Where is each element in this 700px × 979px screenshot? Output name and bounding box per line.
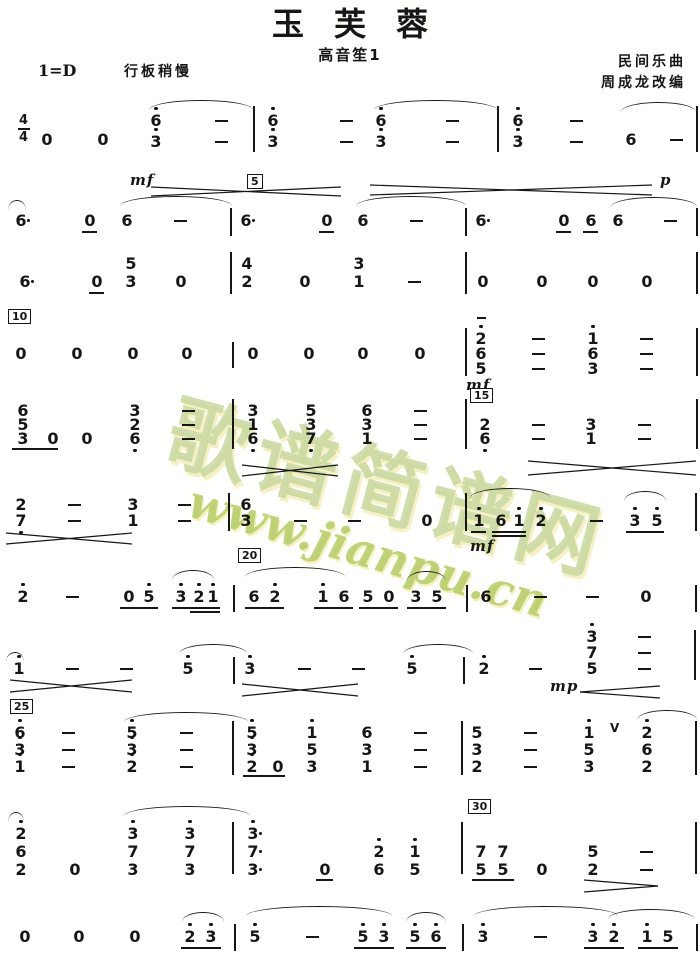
slur-arc — [182, 912, 224, 922]
breath-mark: V — [610, 722, 619, 734]
duration-dash — [524, 766, 537, 768]
note-digit: 2 — [372, 843, 386, 860]
octave-dot — [251, 820, 254, 823]
octave-dot — [539, 507, 542, 510]
beam-underline — [472, 879, 514, 881]
beam-underline — [120, 607, 158, 609]
octave-dot — [154, 128, 157, 131]
duration-dash — [640, 368, 653, 370]
duration-dash — [414, 732, 427, 734]
duration-dash — [340, 141, 353, 143]
octave-dot — [197, 583, 200, 586]
duration-dash — [174, 220, 187, 222]
note-digit: 3 — [266, 133, 280, 150]
slur-arc — [624, 491, 666, 501]
note-digit: 2 — [16, 588, 30, 605]
octave-dot — [250, 719, 253, 722]
hairpin-cross — [528, 460, 696, 480]
rest-digit: 0 — [68, 861, 82, 878]
score: 4400636363636mfp606560660666053042031000… — [0, 0, 700, 979]
note-digit: 5 — [408, 861, 422, 878]
note-digit: 5 — [408, 928, 422, 945]
note-digit: 1 — [640, 928, 654, 945]
note-digit: 5 — [356, 928, 370, 945]
octave-dot — [382, 923, 385, 926]
augmentation-dot — [252, 219, 255, 222]
duration-dash — [182, 438, 195, 440]
note-digit: 6 — [372, 861, 386, 878]
slur-arc — [407, 571, 446, 581]
octave-dot — [186, 655, 189, 658]
note-digit: 6 — [478, 430, 492, 447]
rest-digit: 0 — [72, 928, 86, 945]
duration-dash — [306, 936, 319, 938]
augmentation-dot — [259, 868, 262, 871]
note-digit: 3 — [305, 758, 319, 775]
rest-digit: 0 — [246, 345, 260, 362]
rest-digit: 0 — [420, 512, 434, 529]
note-digit: 7 — [183, 843, 197, 860]
note-digit: 3 — [126, 861, 140, 878]
note-digit: 6 — [18, 273, 32, 290]
note-digit: 2 — [183, 928, 197, 945]
note-digit: 6 — [14, 843, 28, 860]
rest-digit: 0 — [128, 928, 142, 945]
barline — [465, 493, 467, 531]
beam-underline — [638, 947, 678, 949]
barline — [465, 252, 467, 294]
duration-dash — [532, 424, 545, 426]
slur-arc — [406, 912, 446, 922]
octave-dot — [250, 753, 253, 756]
duration-dash — [62, 732, 75, 734]
octave-dot — [655, 507, 658, 510]
note-digit: 6 — [266, 112, 280, 129]
octave-dot — [130, 753, 133, 756]
beam-underline — [406, 947, 446, 949]
note-digit: 3 — [204, 928, 218, 945]
barline — [694, 630, 696, 680]
time-signature: 44 — [16, 114, 31, 144]
octave-dot — [18, 736, 21, 739]
octave-dot — [612, 923, 615, 926]
note-digit: 3 — [586, 360, 600, 377]
note-digit: 3 — [246, 825, 260, 842]
octave-dot — [188, 923, 191, 926]
beam-underline — [190, 611, 220, 613]
octave-dot — [21, 583, 24, 586]
duration-dash — [66, 596, 79, 598]
duration-dash — [182, 424, 195, 426]
note-digit: 5 — [474, 360, 488, 377]
duration-dash — [670, 139, 683, 141]
beam-underline — [245, 607, 284, 609]
hairpin-cross — [6, 530, 132, 549]
tie-end-arc — [8, 200, 26, 210]
slur-arc — [149, 100, 253, 110]
measure-number-box: 15 — [470, 388, 493, 403]
note-digit: 5 — [142, 588, 156, 605]
note-digit: 1 — [582, 724, 596, 741]
duration-dash — [120, 668, 133, 670]
note-digit: 6 — [374, 112, 388, 129]
beam-underline — [556, 231, 571, 233]
note-digit: 1 — [305, 724, 319, 741]
barline — [232, 399, 234, 449]
duration-dash — [570, 120, 583, 122]
beam-underline — [172, 607, 220, 609]
rest-digit: 0 — [557, 212, 571, 229]
rest-digit: 0 — [70, 345, 84, 362]
beam-underline — [359, 607, 398, 609]
duration-dash — [664, 220, 677, 222]
rest-digit: 0 — [80, 430, 94, 447]
duration-dash — [180, 732, 193, 734]
duration-dash — [352, 668, 365, 670]
octave-dot — [147, 583, 150, 586]
duration-dash — [66, 668, 79, 670]
duration-dash — [586, 596, 599, 598]
barline — [696, 924, 698, 951]
note-digit: 1 — [584, 430, 598, 447]
duration-dash — [68, 520, 81, 522]
note-digit: 1 — [360, 430, 374, 447]
note-digit: 6 — [429, 928, 443, 945]
note-digit: 3 — [239, 512, 253, 529]
duration-dash — [180, 749, 193, 751]
note-digit: 3 — [126, 825, 140, 842]
beam-underline — [181, 947, 221, 949]
note-digit: 2 — [470, 758, 484, 775]
note-digit: 2 — [125, 758, 139, 775]
beam-underline — [583, 231, 598, 233]
dynamic-marking: mp — [550, 678, 578, 694]
octave-dot — [133, 449, 136, 452]
octave-dot — [179, 583, 182, 586]
duration-dash — [414, 424, 427, 426]
beam-underline — [492, 531, 526, 533]
rest-digit: 0 — [356, 345, 370, 362]
barline — [696, 328, 698, 376]
rest-digit: 0 — [122, 588, 136, 605]
beam-underline — [492, 535, 526, 537]
measure-number-box: 20 — [238, 548, 261, 563]
note-digit: 5 — [585, 660, 599, 677]
time-signature-denominator: 4 — [16, 131, 31, 144]
note-digit: 4 — [240, 255, 254, 272]
note-digit: 3 — [586, 928, 600, 945]
slur-arc — [124, 806, 250, 816]
octave-dot — [309, 449, 312, 452]
barline — [695, 822, 697, 874]
rest-digit: 0 — [83, 212, 97, 229]
octave-dot — [483, 449, 486, 452]
octave-dot — [209, 923, 212, 926]
duration-dash — [524, 732, 537, 734]
octave-dot — [434, 923, 437, 926]
beam-underline — [471, 531, 486, 533]
duration-dash — [529, 668, 542, 670]
note-digit: 1 — [512, 512, 526, 529]
rest-digit: 0 — [382, 588, 396, 605]
note-digit: 3 — [582, 758, 596, 775]
barline — [234, 924, 236, 951]
octave-dot — [273, 583, 276, 586]
rest-digit: 0 — [96, 131, 110, 148]
octave-dot — [379, 128, 382, 131]
note-digit: 3 — [377, 928, 391, 945]
duration-dash — [215, 141, 228, 143]
note-digit: 5 — [248, 928, 262, 945]
octave-dot — [310, 719, 313, 722]
octave-dot — [271, 128, 274, 131]
note-digit: 3 — [183, 825, 197, 842]
rest-digit: 0 — [535, 861, 549, 878]
note-digit: 2 — [245, 758, 259, 775]
duration-dash — [534, 596, 547, 598]
slur-arc — [621, 102, 696, 112]
duration-dash — [532, 353, 545, 355]
note-digit: 2 — [640, 758, 654, 775]
note-digit: 5 — [470, 724, 484, 741]
note-digit: 6 — [120, 212, 134, 229]
note-digit: 3 — [360, 741, 374, 758]
beam-underline — [626, 531, 664, 533]
barline — [465, 208, 467, 236]
measure-number-box: 5 — [247, 174, 263, 189]
note-digit: 2 — [607, 928, 621, 945]
slur-arc — [474, 906, 618, 916]
note-digit: 7 — [304, 430, 318, 447]
note-digit: 6 — [494, 512, 508, 529]
barline — [465, 399, 467, 449]
barline — [232, 822, 234, 874]
duration-dash — [590, 520, 603, 522]
note-digit: 2 — [14, 861, 28, 878]
beam-underline — [89, 292, 104, 294]
octave-dot — [482, 655, 485, 658]
rest-digit: 0 — [535, 273, 549, 290]
note-digit: 3 — [246, 861, 260, 878]
rest-digit: 0 — [639, 588, 653, 605]
barline — [462, 924, 464, 951]
note-digit: 6 — [360, 724, 374, 741]
barline — [230, 252, 232, 294]
duration-dash — [534, 936, 547, 938]
slur-arc — [608, 909, 694, 919]
duration-dash — [294, 520, 307, 522]
sheet-music-page: 歌谱简谱网 www.jianpu.cn 玉芙蓉 高音笙1 民间乐曲 周成龙改编 … — [0, 0, 700, 979]
note-digit: 6 — [149, 112, 163, 129]
note-digit: 1 — [316, 588, 330, 605]
slur-arc — [172, 570, 214, 580]
duration-dash — [638, 424, 651, 426]
barline — [232, 721, 234, 775]
duration-dash — [408, 281, 421, 283]
octave-dot — [361, 923, 364, 926]
note-digit: 3 — [470, 741, 484, 758]
beam-underline — [477, 317, 486, 319]
duration-dash — [215, 120, 228, 122]
duration-dash — [178, 520, 191, 522]
measure-number-box: 10 — [8, 309, 31, 324]
duration-dash — [640, 869, 653, 871]
octave-dot — [591, 325, 594, 328]
rest-digit: 0 — [126, 345, 140, 362]
barline — [465, 328, 467, 376]
note-digit: 2 — [534, 512, 548, 529]
note-digit: 3 — [149, 133, 163, 150]
barline — [461, 822, 463, 874]
note-digit: 5 — [181, 660, 195, 677]
slur-arc — [637, 710, 697, 720]
duration-dash — [410, 220, 423, 222]
rest-digit: 0 — [90, 273, 104, 290]
duration-dash — [638, 652, 651, 654]
barline — [696, 106, 698, 152]
note-digit: 3 — [409, 588, 423, 605]
rest-digit: 0 — [14, 345, 28, 362]
slur-arc — [124, 712, 248, 722]
rest-digit: 0 — [298, 273, 312, 290]
octave-dot — [645, 923, 648, 926]
rest-digit: 0 — [586, 273, 600, 290]
octave-dot — [410, 655, 413, 658]
duration-dash — [414, 438, 427, 440]
rest-digit: 0 — [40, 131, 54, 148]
rest-digit: 0 — [271, 758, 285, 775]
measure-number-box: 25 — [10, 699, 33, 714]
slur-arc — [374, 100, 497, 110]
note-digit: 2 — [268, 588, 282, 605]
duration-dash — [532, 338, 545, 340]
duration-dash — [446, 120, 459, 122]
barline — [230, 208, 232, 236]
note-digit: 2 — [192, 588, 206, 605]
note-digit: 1 — [408, 843, 422, 860]
duration-dash — [340, 120, 353, 122]
octave-dot — [211, 583, 214, 586]
slur-arc — [403, 644, 473, 654]
duration-dash — [348, 520, 361, 522]
octave-dot — [250, 736, 253, 739]
note-digit: 1 — [13, 758, 27, 775]
octave-dot — [18, 719, 21, 722]
duration-dash — [414, 749, 427, 751]
time-signature-numerator: 4 — [16, 114, 31, 127]
note-digit: 1 — [472, 512, 486, 529]
barline — [228, 493, 230, 531]
note-digit: 6 — [14, 212, 28, 229]
rest-digit: 0 — [320, 212, 334, 229]
duration-dash — [640, 353, 653, 355]
barline — [232, 342, 234, 368]
rest-digit: 0 — [302, 345, 316, 362]
note-digit: 7 — [246, 843, 260, 860]
note-digit: 6 — [611, 212, 625, 229]
note-digit: 5 — [305, 741, 319, 758]
hairpin-cross — [242, 682, 358, 701]
note-digit: 1 — [206, 588, 220, 605]
note-digit: 1 — [352, 273, 366, 290]
duration-dash — [640, 851, 653, 853]
octave-dot — [517, 507, 520, 510]
augmentation-dot — [27, 219, 30, 222]
beam-underline — [407, 607, 446, 609]
slur-arc — [246, 906, 392, 916]
note-digit: 7 — [496, 843, 510, 860]
octave-dot — [516, 107, 519, 110]
beam-underline — [316, 879, 333, 881]
note-digit: 6 — [247, 588, 261, 605]
augmentation-dot — [487, 219, 490, 222]
note-digit: 6 — [239, 212, 253, 229]
note-digit: 5 — [586, 843, 600, 860]
duration-dash — [62, 766, 75, 768]
note-digit: 2 — [477, 660, 491, 677]
beam-underline — [12, 448, 58, 450]
note-digit: 5 — [650, 512, 664, 529]
note-digit: 6 — [337, 588, 351, 605]
note-digit: 5 — [361, 588, 375, 605]
octave-dot — [19, 820, 22, 823]
rest-digit: 0 — [18, 928, 32, 945]
beam-underline — [82, 231, 97, 233]
decrescendo-hairpin — [584, 878, 658, 897]
barline — [466, 585, 468, 612]
note-digit: 7 — [474, 843, 488, 860]
octave-dot — [131, 820, 134, 823]
barline — [463, 657, 465, 684]
note-digit: 6 — [584, 212, 598, 229]
measure-number-box: 30 — [468, 799, 491, 814]
barline — [233, 657, 235, 684]
slur-arc — [245, 567, 345, 577]
note-digit: 6 — [624, 131, 638, 148]
note-digit: 6 — [640, 741, 654, 758]
octave-dot — [633, 507, 636, 510]
note-digit: 3 — [183, 861, 197, 878]
duration-dash — [414, 410, 427, 412]
rest-digit: 0 — [174, 273, 188, 290]
crescendo-hairpin — [580, 684, 660, 703]
beam-underline — [354, 947, 394, 949]
barline — [233, 585, 235, 612]
octave-dot — [591, 923, 594, 926]
note-digit: 5 — [474, 861, 488, 878]
note-digit: 1 — [126, 512, 140, 529]
duration-dash — [62, 749, 75, 751]
octave-dot — [477, 507, 480, 510]
beam-underline — [243, 775, 285, 777]
augmentation-dot — [259, 832, 262, 835]
rest-digit: 0 — [640, 273, 654, 290]
octave-dot — [251, 449, 254, 452]
note-digit: 5 — [430, 588, 444, 605]
note-digit: 1 — [360, 758, 374, 775]
slur-arc — [179, 644, 247, 654]
octave-dot — [413, 923, 416, 926]
duration-dash — [524, 749, 537, 751]
octave-dot — [18, 753, 21, 756]
note-digit: 6 — [246, 430, 260, 447]
barline — [696, 399, 698, 449]
duration-dash — [414, 766, 427, 768]
note-digit: 1 — [12, 660, 26, 677]
hairpin-cross — [10, 678, 132, 697]
augmentation-dot — [31, 280, 34, 283]
octave-dot — [413, 838, 416, 841]
